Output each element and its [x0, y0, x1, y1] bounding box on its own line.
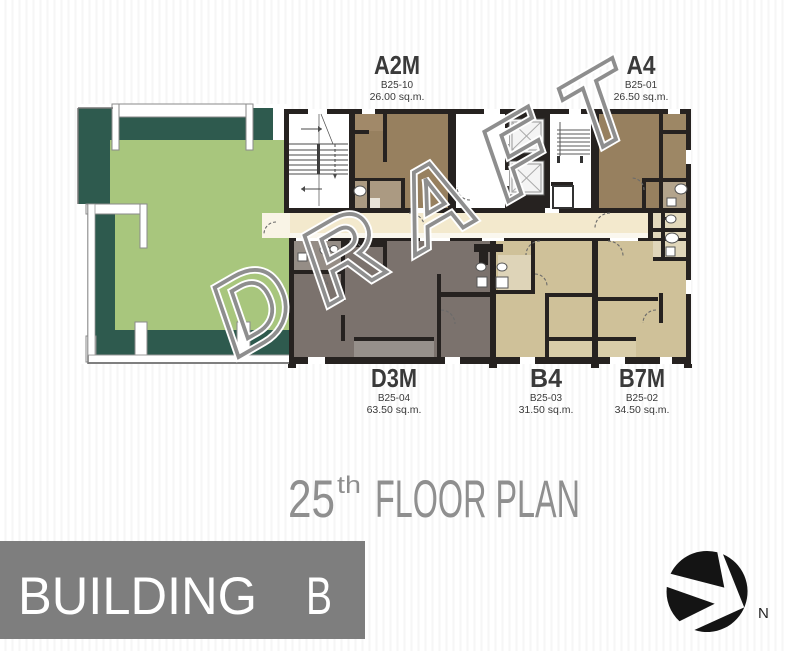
svg-text:A2M: A2M	[374, 50, 420, 80]
svg-text:26.50 sq.m.: 26.50 sq.m.	[614, 91, 669, 103]
svg-text:FLOOR PLAN: FLOOR PLAN	[375, 470, 580, 529]
svg-text:25: 25	[288, 470, 335, 529]
svg-text:31.50 sq.m.: 31.50 sq.m.	[519, 404, 574, 416]
svg-text:A4: A4	[627, 50, 656, 80]
svg-text:D3M: D3M	[371, 363, 417, 393]
svg-text:B: B	[306, 567, 332, 626]
svg-text:B25-04: B25-04	[378, 393, 411, 404]
svg-text:26.00 sq.m.: 26.00 sq.m.	[370, 91, 425, 103]
svg-text:B4: B4	[530, 363, 563, 393]
svg-text:BUILDING: BUILDING	[18, 567, 257, 626]
svg-text:34.50 sq.m.: 34.50 sq.m.	[615, 404, 670, 416]
svg-text:B25-02: B25-02	[626, 393, 659, 404]
svg-text:th: th	[337, 472, 361, 499]
svg-text:N: N	[758, 605, 769, 622]
svg-text:B25-03: B25-03	[530, 393, 563, 404]
svg-text:B25-10: B25-10	[381, 80, 414, 91]
svg-text:B7M: B7M	[619, 363, 665, 393]
svg-text:63.50 sq.m.: 63.50 sq.m.	[367, 404, 422, 416]
svg-text:B25-01: B25-01	[625, 80, 658, 91]
